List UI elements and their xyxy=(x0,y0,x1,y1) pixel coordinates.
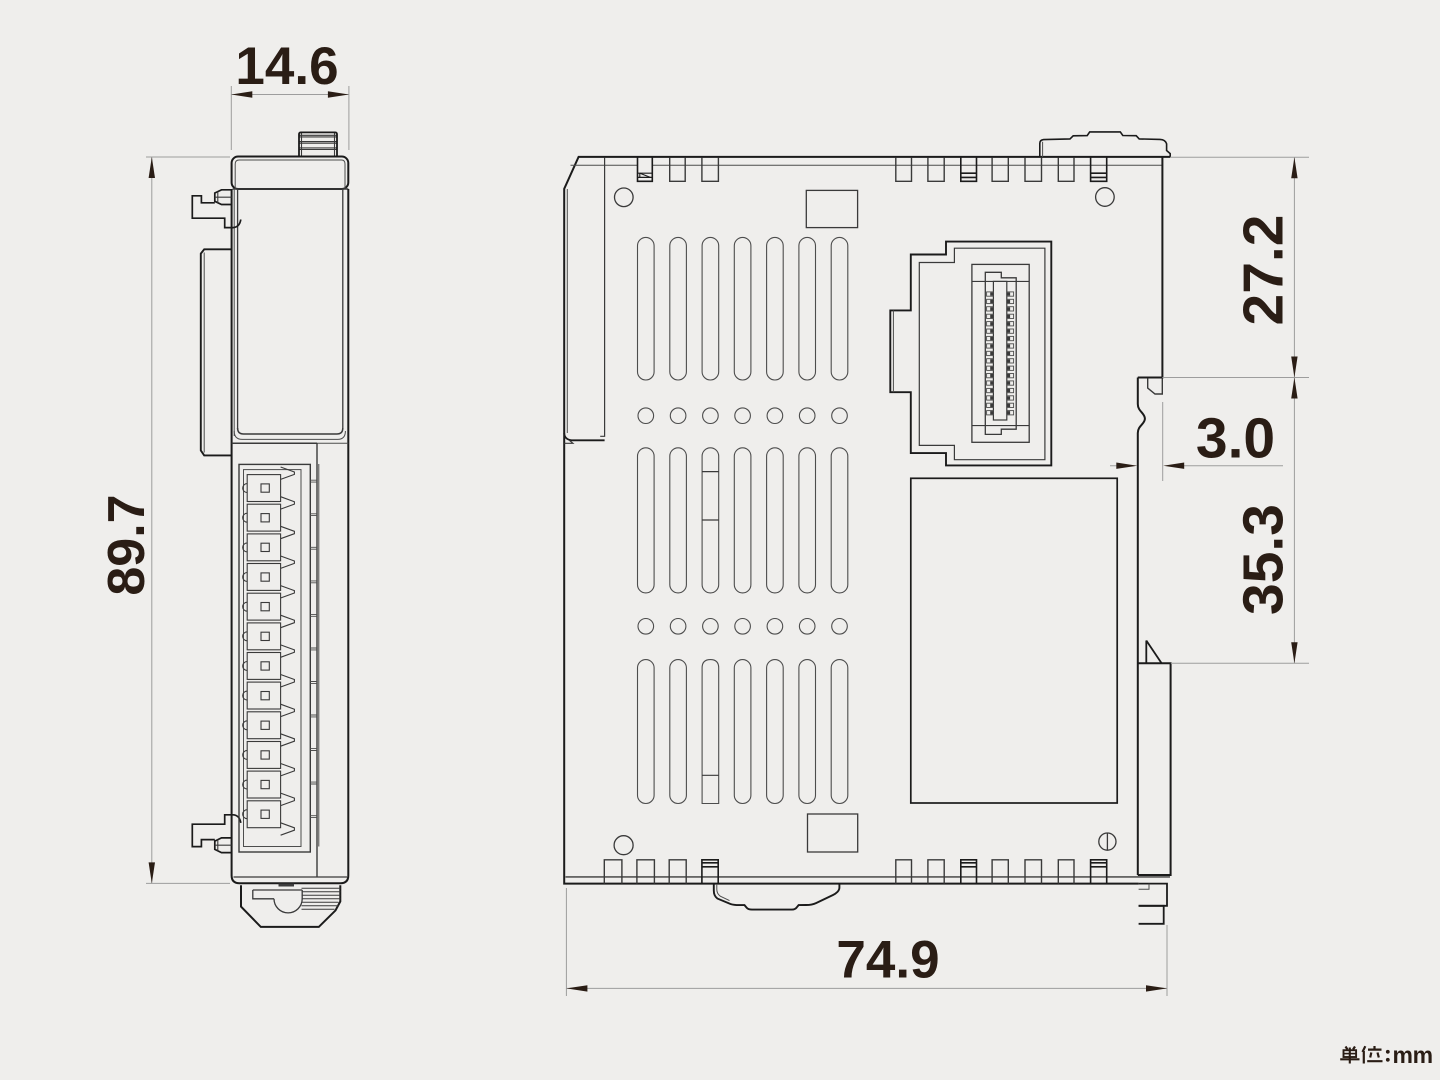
svg-text:3.0: 3.0 xyxy=(1196,407,1275,471)
svg-text:74.9: 74.9 xyxy=(836,931,939,990)
svg-text:mm: mm xyxy=(1393,1042,1433,1068)
svg-text:35.3: 35.3 xyxy=(1232,504,1296,615)
svg-text:14.6: 14.6 xyxy=(235,37,338,96)
svg-text:27.2: 27.2 xyxy=(1232,215,1296,326)
svg-text:89.7: 89.7 xyxy=(98,494,156,595)
